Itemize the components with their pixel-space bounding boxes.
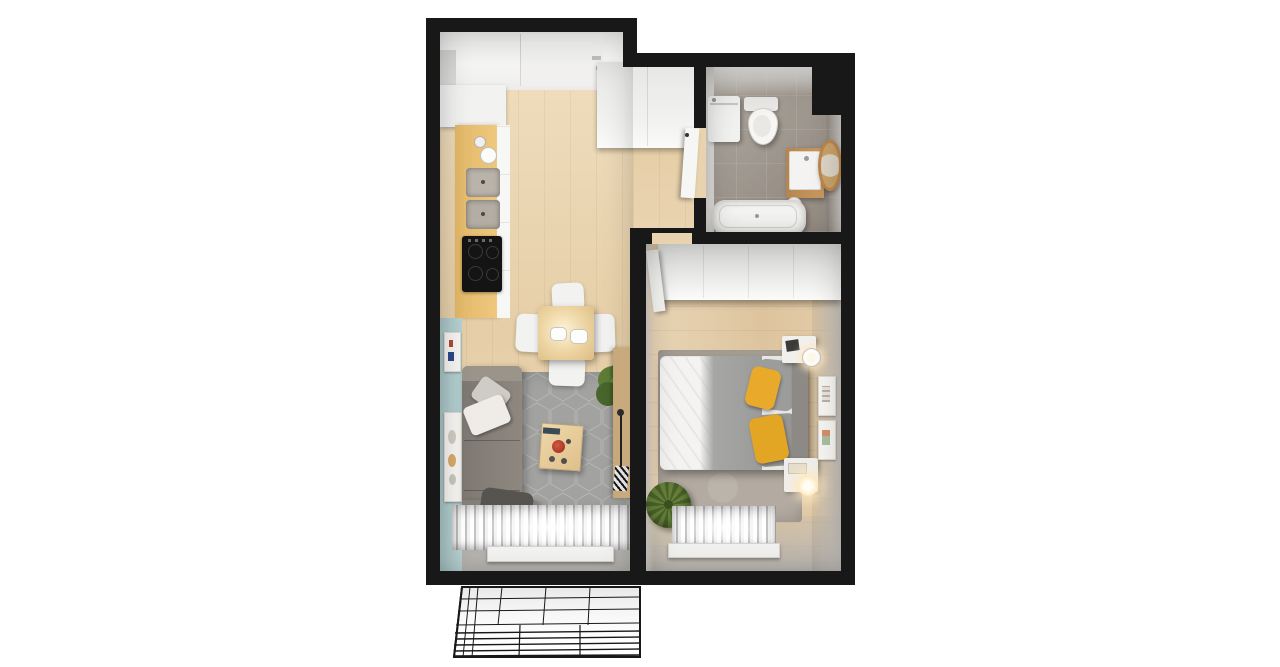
living-curtain-highlight [487, 507, 612, 548]
wardrobe [658, 244, 841, 300]
kitchen-faucet [474, 136, 486, 148]
wall-notch-step [623, 18, 637, 67]
coffee-table-cup-1 [566, 439, 571, 444]
sofa-armrest [462, 366, 522, 381]
wall-bathroom-notch-block [812, 53, 855, 115]
table-lamp-bottom [798, 476, 818, 496]
washing-machine-panel [710, 103, 738, 105]
living-window-sill [487, 546, 614, 562]
toilet-seat [753, 115, 771, 137]
striped-basket [613, 465, 630, 491]
nightstand-bottom-books [788, 463, 807, 474]
wall-top-left [426, 18, 637, 32]
picture-frame-bedroom-2-art [822, 430, 830, 445]
floor-lamp-head [617, 409, 624, 416]
wall-hall-bathroom-lower [694, 198, 706, 232]
picture-frame-living-1-art-red [449, 340, 453, 347]
bedroom-window-sill [668, 543, 780, 558]
cooktop-controls [468, 239, 496, 242]
tall-cabinet [440, 85, 506, 127]
bathtub-drain [755, 214, 759, 218]
cooktop [462, 236, 502, 292]
dining-plate-1 [550, 327, 567, 341]
picture-frame-living-2-art-circle2 [448, 454, 456, 467]
coffee-table-cup-3 [561, 458, 567, 464]
floor-plan-canvas [0, 0, 1280, 667]
picture-frame-living-2-art-circle3 [449, 474, 456, 485]
coffee-table-cup-2 [549, 456, 555, 462]
vanity-faucet [804, 156, 809, 161]
picture-frame-living-2-art-circle1 [448, 430, 456, 444]
picture-frame-living-1-art-blue [448, 352, 454, 361]
cooktop-burner-3 [468, 266, 483, 281]
kitchen-sink-bowl [480, 147, 497, 164]
wall-partition-living-bedroom [630, 228, 646, 571]
bedroom-curtain-highlight [684, 508, 764, 547]
closet-door-seam [647, 64, 648, 146]
cooktop-burner-2 [486, 246, 499, 259]
dining-chair-bottom [548, 355, 585, 386]
washing-machine-dial [712, 98, 716, 102]
sink-drain-1 [481, 180, 485, 184]
bed-headboard [792, 356, 808, 470]
coffee-table-red-bowl [552, 440, 565, 453]
dining-plate-2 [570, 329, 588, 344]
wardrobe-seam-2 [748, 246, 749, 298]
wall-left [426, 18, 440, 585]
sink-drain-2 [481, 212, 485, 216]
balcony [450, 585, 650, 665]
coffee-table-book [543, 427, 560, 434]
wall-hall-bathroom [694, 53, 706, 128]
cooktop-burner-4 [486, 268, 499, 281]
picture-frame-bedroom-1-art [822, 386, 830, 402]
round-mirror [818, 140, 842, 191]
bathroom-door-handle [685, 133, 689, 137]
floor-lamp [620, 412, 622, 472]
wardrobe-seam-1 [703, 246, 704, 298]
table-lamp-top [802, 348, 821, 367]
nightstand-top-item [785, 339, 799, 352]
cooktop-burner-1 [468, 244, 483, 259]
wardrobe-seam-3 [793, 246, 794, 298]
entrance-door [520, 34, 603, 86]
wall-bottom [426, 571, 855, 585]
sofa-seam-1 [464, 440, 520, 441]
bedroom-doorway-opening [652, 233, 692, 244]
wall-right [841, 53, 855, 585]
entrance-door-handle [592, 56, 601, 60]
